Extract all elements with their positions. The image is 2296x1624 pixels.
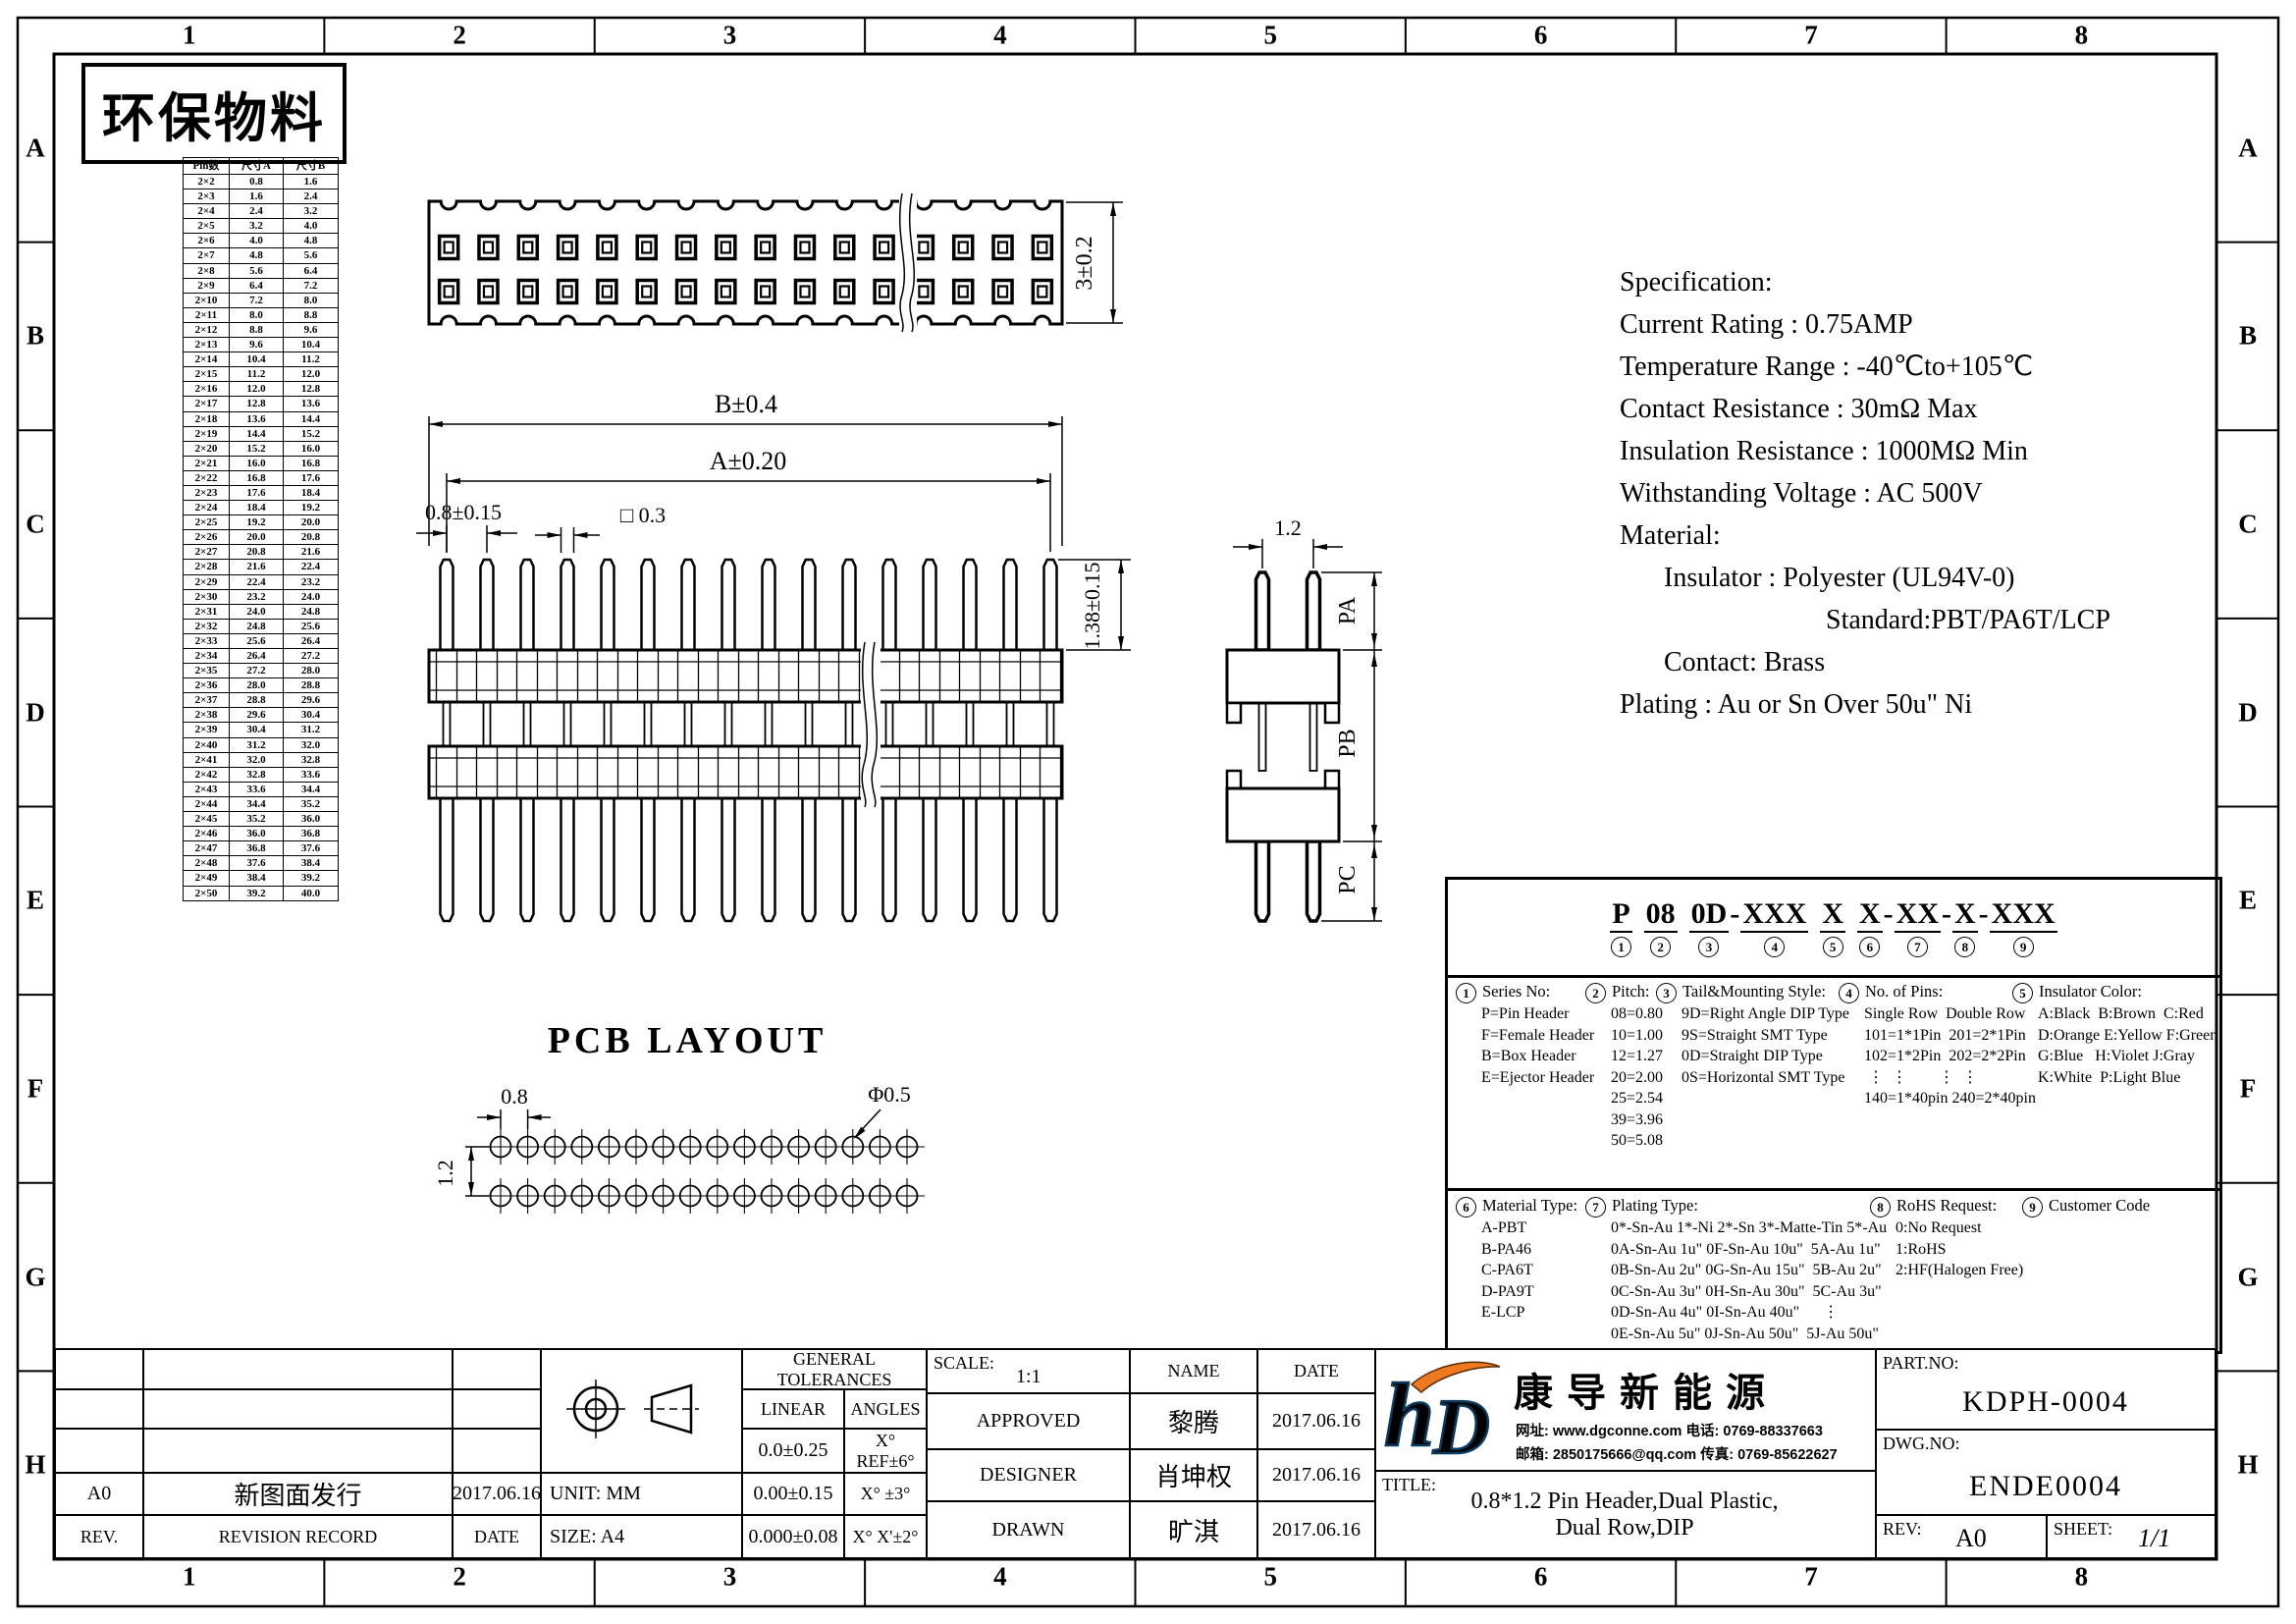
part-number-code: P10820D3-XXX4X5X6-XX7-X8-XXX9 [1448, 897, 2219, 957]
zone-label: B [2239, 321, 2257, 352]
spec-line: Withstanding Voltage : AC 500V [1620, 472, 2110, 514]
sheet-label: SHEET: [2054, 1519, 2112, 1540]
table-row: 2×2418.419.2 [184, 501, 339, 515]
zone-label: D [2238, 697, 2258, 728]
dim-pcb-pitch: 0.8 [501, 1084, 528, 1109]
table-row: 2×139.610.4 [184, 338, 339, 352]
spec-line: Plating : Au or Sn Over 50u" Ni [1620, 683, 2110, 726]
col-header-dim-b: 尺寸B [284, 158, 339, 175]
zone-label: D [26, 697, 45, 728]
zone-label: B [27, 321, 44, 352]
dim-side-width: 1.2 [1274, 515, 1302, 540]
zone-label: E [27, 886, 44, 916]
revision-rev-header: REV. [54, 1514, 144, 1559]
spec-line: Contact: Brass [1620, 641, 2110, 683]
legend-line: 102=1*2Pin 202=2*2Pin [1864, 1046, 2036, 1067]
code-group: X5 [1820, 897, 1845, 957]
tolerances-title: GENERAL TOLERANCES [741, 1348, 928, 1390]
legend-line: A-PBT [1481, 1218, 1577, 1239]
circled-number-icon: 5 [2012, 983, 2033, 1003]
zone-label: 3 [723, 1562, 737, 1593]
legend-line: 50=5.08 [1611, 1130, 1663, 1152]
scale-label: SCALE: [934, 1353, 994, 1374]
company-contact-line1: 网址: www.dgconne.com 电话: 0769-88337663 [1516, 1420, 1869, 1440]
table-row: 2×128.89.6 [184, 322, 339, 337]
legend-line: 2:HF(Halogen Free) [1896, 1260, 2023, 1281]
circled-number-icon: 9 [2013, 937, 2034, 957]
table-row: 2×3728.829.6 [184, 693, 339, 708]
zone-label: 6 [1534, 1562, 1548, 1593]
specification-block: Specification:Current Rating : 0.75AMPTe… [1620, 261, 2110, 726]
col-header-pin-count: Pin数 [184, 158, 230, 175]
scale-value: 1:1 [1016, 1366, 1041, 1388]
legend-tail-mounting: 3Tail&Mounting Style: 9D=Right Angle DIP… [1656, 982, 1849, 1088]
legend-line: ⋮ ⋮ ⋮ ⋮ [1864, 1067, 2036, 1089]
table-row: 2×2519.220.0 [184, 515, 339, 530]
table-row: 2×3224.825.6 [184, 619, 339, 633]
zone-label: 6 [1534, 21, 1548, 51]
legend-rohs: 8RoHS Request: 0:No Request1:RoHS2:HF(Ha… [1870, 1196, 2023, 1281]
zone-label: 3 [723, 21, 737, 51]
date-header: DATE [1256, 1348, 1376, 1394]
table-row: 2×3628.028.8 [184, 678, 339, 693]
part-no-label: PART.NO: [1883, 1353, 1958, 1374]
tolerance-angle-1: X° REF±6° [843, 1428, 928, 1474]
dim-pcb-row: 1.2 [433, 1160, 457, 1187]
table-row: 2×2620.020.8 [184, 530, 339, 545]
dwg-no-value: ENDE0004 [1877, 1470, 2215, 1503]
approved-date: 2017.06.16 [1256, 1392, 1376, 1450]
legend-line: P=Pin Header [1481, 1003, 1594, 1025]
approved-name: 黎腾 [1129, 1392, 1258, 1450]
table-row: 2×4132.032.8 [184, 752, 339, 767]
legend-line: B-PA46 [1481, 1239, 1577, 1261]
table-row: 2×2015.216.0 [184, 441, 339, 456]
drawing-title: 0.8*1.2 Pin Header,Dual Plastic, Dual Ro… [1374, 1489, 1875, 1542]
legend-line: 140=1*40pin 240=2*40pin [1864, 1088, 2036, 1110]
code-group: XX7 [1895, 897, 1941, 957]
code-group: X6 [1857, 897, 1883, 957]
table-row: 2×3124.024.8 [184, 604, 339, 619]
company-name: 康导新能源 [1514, 1361, 1867, 1418]
circled-number-icon: 7 [1907, 937, 1928, 957]
circled-number-icon: 3 [1698, 937, 1719, 957]
code-group: P1 [1610, 897, 1631, 957]
circled-number-icon: 8 [1954, 937, 1975, 957]
table-row: 2×4736.837.6 [184, 841, 339, 856]
rev-value: A0 [1955, 1524, 1987, 1553]
table-row: 2×53.24.0 [184, 219, 339, 234]
legend-insulator-color: 5Insulator Color: A:Black B:Brown C:RedD… [2012, 982, 2217, 1088]
dim-side-pa: PA [1335, 596, 1361, 624]
table-row: 2×4434.435.2 [184, 796, 339, 811]
table-row: 2×2216.817.6 [184, 470, 339, 485]
code-group: XXX9 [1990, 897, 2057, 957]
dim-front-a: A±0.20 [710, 447, 787, 475]
table-row: 2×96.47.2 [184, 278, 339, 293]
table-row: 2×4232.833.6 [184, 767, 339, 782]
table-row: 2×118.08.8 [184, 307, 339, 322]
circled-number-icon: 2 [1650, 937, 1671, 957]
table-header-row: Pin数 尺寸A 尺寸B [184, 158, 339, 175]
drawn-date: 2017.06.16 [1256, 1500, 1376, 1559]
spec-line: Insulator : Polyester (UL94V-0) [1620, 557, 2110, 599]
legend-line: E-LCP [1481, 1302, 1577, 1324]
col-header-dim-a: 尺寸A [230, 158, 284, 175]
circled-number-icon: 5 [1823, 937, 1843, 957]
tolerance-angle-2: X° ±3° [843, 1472, 928, 1516]
legend-line: G:Blue H:Violet J:Gray [2038, 1046, 2217, 1067]
table-row: 2×2317.618.4 [184, 485, 339, 500]
table-row: 2×2821.622.4 [184, 560, 339, 574]
table-row: 2×4938.439.2 [184, 871, 339, 886]
rev-label: REV: [1883, 1519, 1922, 1540]
legend-line: 0B-Sn-Au 2u" 0G-Sn-Au 15u" 5B-Au 2u" [1611, 1260, 1887, 1281]
table-row: 2×31.62.4 [184, 189, 339, 204]
designer-label: DESIGNER [926, 1448, 1131, 1502]
legend-plating: 7Plating Type: 0*-Sn-Au 1*-Ni 2*-Sn 3*-M… [1585, 1196, 1887, 1344]
table-row: 2×3829.630.4 [184, 708, 339, 723]
spec-line: Specification: [1620, 261, 2110, 303]
legend-line: 0S=Horizontal SMT Type [1682, 1067, 1849, 1089]
legend-line: 25=2.54 [1611, 1088, 1663, 1110]
company-contact-line2: 邮箱: 2850175666@qq.com 传真: 0769-85622627 [1516, 1443, 1869, 1464]
unit-label: UNIT: MM [540, 1472, 743, 1516]
dim-front-pin: □ 0.3 [620, 503, 666, 527]
designer-date: 2017.06.16 [1256, 1448, 1376, 1502]
svg-text:D: D [1432, 1384, 1490, 1467]
legend-customer-code: 9Customer Code [2022, 1196, 2150, 1218]
table-row: 2×3426.427.2 [184, 649, 339, 664]
zone-label: G [25, 1262, 45, 1292]
legend-line: 101=1*1Pin 201=2*1Pin [1864, 1025, 2036, 1047]
table-row: 2×4031.232.0 [184, 737, 339, 752]
legend-line: 0:No Request [1896, 1218, 2023, 1239]
zone-label: 2 [453, 21, 466, 51]
pcb-layout-drawing [465, 1110, 925, 1214]
tolerances-angles-header: ANGLES [843, 1388, 928, 1430]
table-row: 2×1813.614.4 [184, 411, 339, 426]
spec-line: Current Rating : 0.75AMP [1620, 303, 2110, 346]
spec-line: Contact Resistance : 30mΩ Max [1620, 388, 2110, 430]
code-group: X8 [1952, 897, 1978, 957]
legend-line: B=Box Header [1481, 1046, 1594, 1067]
dim-front-b: B±0.4 [715, 390, 777, 418]
legend-line: 9D=Right Angle DIP Type [1682, 1003, 1849, 1025]
table-row: 2×4333.634.4 [184, 782, 339, 796]
legend-line: 0D=Straight DIP Type [1682, 1046, 1849, 1067]
code-group: 082 [1644, 897, 1678, 957]
legend-line: 0A-Sn-Au 1u" 0F-Sn-Au 10u" 5A-Au 1u" [1611, 1239, 1887, 1261]
table-row: 2×2116.016.8 [184, 456, 339, 470]
tolerance-linear-2: 0.00±0.15 [741, 1472, 845, 1516]
table-row: 2×4636.036.8 [184, 827, 339, 841]
table-row: 2×1712.813.6 [184, 397, 339, 411]
table-row: 2×4535.236.0 [184, 812, 339, 827]
zone-label: E [2239, 886, 2257, 916]
revision-record-value: 新图面发行 [142, 1472, 454, 1516]
legend-pitch: 2Pitch: 08=0.8010=1.0012=1.2720=2.0025=2… [1585, 982, 1663, 1152]
code-group: 0D3 [1689, 897, 1730, 957]
dim-top-height: 3±0.2 [1072, 236, 1097, 290]
circled-number-icon: 6 [1456, 1197, 1476, 1218]
tolerance-linear-3: 0.000±0.08 [741, 1514, 845, 1559]
circled-number-icon: 1 [1611, 937, 1631, 957]
zone-label: A [26, 133, 45, 163]
zone-label: 7 [1804, 1562, 1818, 1593]
legend-line: 0D-Sn-Au 4u" 0I-Sn-Au 40u" ⋮ [1611, 1302, 1887, 1324]
revision-date-header: DATE [452, 1514, 542, 1559]
code-group: XXX4 [1740, 897, 1808, 957]
legend-line: 1:RoHS [1896, 1239, 2023, 1261]
zone-label: 4 [993, 21, 1007, 51]
zone-label: G [2237, 1262, 2258, 1292]
legend-line: Single Row Double Row [1864, 1003, 2036, 1025]
approved-label: APPROVED [926, 1392, 1131, 1450]
legend-line: 0*-Sn-Au 1*-Ni 2*-Sn 3*-Matte-Tin 5*-Au [1611, 1218, 1887, 1239]
zone-label: 4 [993, 1562, 1007, 1593]
spec-line: Material: [1620, 514, 2110, 557]
spec-line: Temperature Range : -40℃to+105℃ [1620, 346, 2110, 388]
top-view-drawing [429, 193, 1123, 332]
legend-line: D-PA9T [1481, 1281, 1577, 1303]
name-header: NAME [1129, 1348, 1258, 1394]
table-row: 2×3023.224.0 [184, 589, 339, 604]
legend-pin-count: 4No. of Pins: Single Row Double Row101=1… [1839, 982, 2036, 1110]
revision-rev-value: A0 [54, 1472, 144, 1516]
zone-label: 8 [2075, 21, 2089, 51]
table-row: 2×85.66.4 [184, 263, 339, 278]
legend-line: A:Black B:Brown C:Red [2038, 1003, 2217, 1025]
drawing-title-line1: 0.8*1.2 Pin Header,Dual Plastic, [1374, 1489, 1875, 1515]
table-row: 2×3325.626.4 [184, 633, 339, 648]
legend-line: 9S=Straight SMT Type [1682, 1025, 1849, 1047]
dim-front-height: 1.38±0.15 [1080, 562, 1104, 649]
legend-material: 6Material Type: A-PBTB-PA46C-PA6TD-PA9TE… [1456, 1196, 1577, 1324]
zone-label: H [2237, 1450, 2258, 1481]
engineering-drawing-page: 3±0.2 B±0.4 A±0.20 0.8±0.15 □ 0.3 1.38±0… [0, 0, 2296, 1624]
zone-label: A [2238, 133, 2258, 163]
zone-label: 8 [2075, 1562, 2089, 1593]
revision-record-header: REVISION RECORD [142, 1514, 454, 1559]
legend-line: 39=3.96 [1611, 1110, 1663, 1131]
circled-number-icon: 7 [1585, 1197, 1606, 1218]
revision-date-value: 2017.06.16 [452, 1472, 542, 1516]
circled-number-icon: 3 [1656, 983, 1677, 1003]
circled-number-icon: 2 [1585, 983, 1606, 1003]
legend-line: F=Female Header [1481, 1025, 1594, 1047]
zone-label: H [25, 1450, 45, 1481]
table-row: 2×107.28.0 [184, 293, 339, 307]
sheet-value: 1/1 [2138, 1524, 2170, 1553]
table-row: 2×42.43.2 [184, 204, 339, 219]
drawn-name: 旷淇 [1129, 1500, 1258, 1559]
zone-label: 2 [453, 1562, 466, 1593]
part-no-value: KDPH-0004 [1877, 1385, 2215, 1419]
table-row: 2×74.85.6 [184, 248, 339, 263]
front-view-drawing [416, 416, 1131, 921]
circled-number-icon: 4 [1764, 937, 1785, 957]
drawing-title-line2: Dual Row,DIP [1374, 1515, 1875, 1542]
tolerances-linear-header: LINEAR [741, 1388, 845, 1430]
tolerance-angle-3: X° X'±2° [843, 1514, 928, 1559]
part-number-legend-box: P10820D3-XXX4X5X6-XX7-X8-XXX9 1Series No… [1445, 877, 2222, 1354]
zone-label: F [2240, 1073, 2257, 1104]
svg-text:h: h [1384, 1365, 1434, 1465]
zone-label: 1 [183, 1562, 196, 1593]
zone-label: 5 [1263, 1562, 1277, 1593]
table-row: 2×2922.423.2 [184, 574, 339, 589]
table-row: 2×2720.821.6 [184, 545, 339, 560]
designer-name: 肖坤权 [1129, 1448, 1258, 1502]
circled-number-icon: 1 [1456, 983, 1476, 1003]
dim-side-pb: PB [1335, 729, 1361, 757]
table-row: 2×4837.638.4 [184, 856, 339, 871]
circled-number-icon: 6 [1859, 937, 1880, 957]
table-row: 2×3930.431.2 [184, 723, 339, 737]
dim-pcb-hole: Φ0.5 [868, 1082, 911, 1107]
table-row: 2×5039.240.0 [184, 886, 339, 900]
circled-number-icon: 8 [1870, 1197, 1891, 1218]
table-row: 2×1612.012.8 [184, 382, 339, 397]
zone-label: 1 [183, 21, 196, 51]
zone-label: F [27, 1073, 44, 1104]
eco-material-stamp: 环保物料 [81, 63, 347, 164]
zone-label: 5 [1263, 21, 1277, 51]
size-label: SIZE: A4 [540, 1514, 743, 1559]
spec-line: Standard:PBT/PA6T/LCP [1620, 599, 2110, 641]
legend-line: 0E-Sn-Au 5u" 0J-Sn-Au 50u" 5J-Au 50u" [1611, 1324, 1887, 1345]
zone-label: 7 [1804, 21, 1818, 51]
circled-number-icon: 9 [2022, 1197, 2043, 1218]
table-row: 2×1410.411.2 [184, 352, 339, 367]
table-row: 2×20.81.6 [184, 175, 339, 189]
legend-line: 0C-Sn-Au 3u" 0H-Sn-Au 30u" 5C-Au 3u" [1611, 1281, 1887, 1303]
zone-label: C [26, 510, 45, 540]
legend-line: D:Orange E:Yellow F:Green [2038, 1025, 2217, 1047]
dwg-no-label: DWG.NO: [1883, 1434, 1960, 1454]
legend-line: K:White P:Light Blue [2038, 1067, 2217, 1089]
spec-line: Insulation Resistance : 1000MΩ Min [1620, 430, 2110, 472]
legend-line: C-PA6T [1481, 1260, 1577, 1281]
table-row: 2×3527.228.0 [184, 664, 339, 678]
drawn-label: DRAWN [926, 1500, 1131, 1559]
dim-side-pc: PC [1335, 865, 1361, 893]
tolerance-linear-1: 0.0±0.25 [741, 1428, 845, 1474]
pcb-layout-title: PCB LAYOUT [548, 1020, 828, 1061]
circled-number-icon: 4 [1839, 983, 1859, 1003]
third-angle-projection-icon [542, 1350, 738, 1468]
dim-front-pitch: 0.8±0.15 [425, 500, 502, 524]
table-row: 2×1914.415.2 [184, 426, 339, 441]
legend-series: 1Series No: P=Pin HeaderF=Female HeaderB… [1456, 982, 1594, 1088]
table-row: 2×1511.212.0 [184, 367, 339, 382]
pin-size-table: Pin数 尺寸A 尺寸B 2×20.81.62×31.62.42×42.43.2… [183, 157, 339, 901]
table-row: 2×64.04.8 [184, 234, 339, 248]
legend-line: E=Ejector Header [1481, 1067, 1594, 1089]
company-logo: h D [1382, 1351, 1512, 1467]
zone-label: C [2238, 510, 2258, 540]
